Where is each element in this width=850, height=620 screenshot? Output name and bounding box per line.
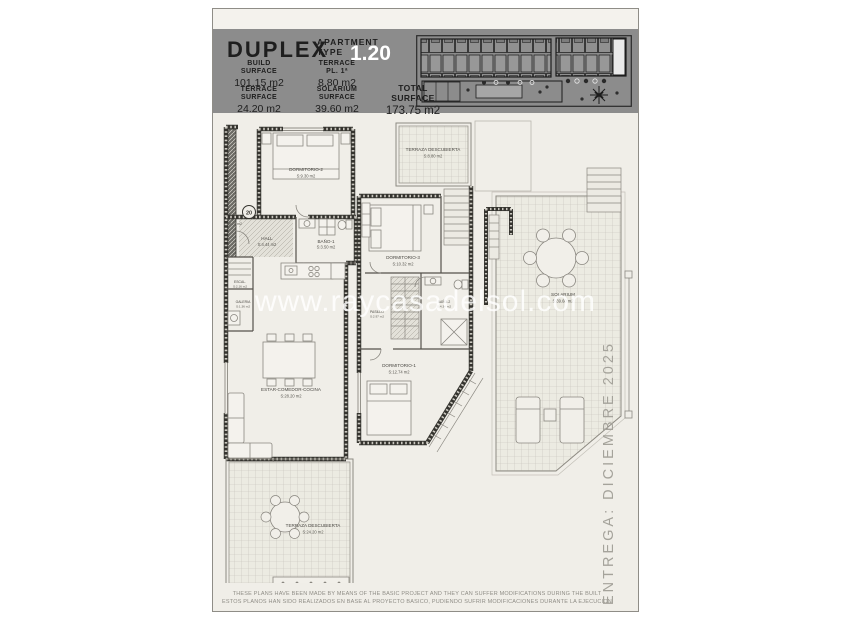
- room-area-galeria: S:1.36 m2: [236, 305, 250, 309]
- amenity-row: [566, 79, 606, 83]
- sink-icon: [430, 278, 436, 284]
- build-surface-label: BUILDSURFACE: [219, 60, 299, 76]
- room-label-solarium: SOLARIUM: [551, 292, 575, 297]
- room-area-hall: S:4.44 m2: [258, 242, 277, 247]
- room-area-escalera: S:2.16 m2: [233, 285, 247, 289]
- highlighted-unit: [613, 39, 625, 75]
- room-area-dormitorio3: S:10.32 m2: [393, 262, 415, 267]
- bed-double: [262, 133, 350, 179]
- room-label-dormitorio2: DORMITORIO-2: [289, 167, 323, 172]
- room-area-bano2: S:4.34 m2: [437, 305, 451, 309]
- kitchen-counter: [281, 263, 345, 279]
- build-surface-cell: BUILDSURFACE 101.15 m2: [219, 60, 299, 89]
- dining-table: [263, 342, 315, 378]
- room-area-terraza-p1: S:8.80 m2: [424, 154, 443, 159]
- sink-icon: [304, 221, 310, 227]
- room-area-dormitorio1: S:12.74 m2: [389, 370, 411, 375]
- toilet-tank: [462, 280, 468, 289]
- disclaimer-line-es: ESTOS PLANOS HAN SIDO REALIZADOS EN BASE…: [221, 598, 613, 606]
- residential-block-left: [421, 39, 551, 77]
- staircase-upper-right: [444, 189, 469, 245]
- dining-set: [263, 334, 315, 386]
- room-area-bano1: S:3.50 m2: [317, 245, 336, 250]
- exterior-stairs: [429, 373, 483, 452]
- sofa: [228, 393, 272, 458]
- room-area-solarium: S:39.60 m2: [553, 299, 575, 304]
- pool-area: [422, 81, 562, 103]
- disclaimer-line-en: THESE PLANS HAVE BEEN MADE BY MEANS OF T…: [221, 590, 613, 598]
- room-area-dormitorio2: S:9.30 m2: [297, 174, 316, 179]
- ground-floor-unit: 20 78.79 m2: [224, 127, 357, 584]
- room-label-bano2: BAÑO-2: [438, 299, 451, 304]
- disclaimer: THESE PLANS HAVE BEEN MADE BY MEANS OF T…: [221, 590, 613, 607]
- terrace-pl1-label: TERRACEPL. 1ª: [299, 60, 375, 76]
- type-label: TYPE: [317, 47, 343, 57]
- room-label-pasillo: PASILLO: [370, 310, 384, 314]
- room-label-hall: HALL: [261, 236, 273, 241]
- compass-rose-icon: [590, 86, 608, 104]
- solarium-surface-label: SOLARIUMSURFACE: [299, 86, 375, 102]
- solarium-surface-cell: SOLARIUMSURFACE 39.60 m2: [299, 86, 375, 115]
- room-label-escalera: ESCAL.: [234, 280, 246, 284]
- terrace-pl1-cell: TERRACEPL. 1ª 8.80 m2: [299, 60, 375, 89]
- unit-number: 20: [246, 211, 252, 217]
- stove-burner-icon: [315, 272, 319, 276]
- floor-plan-drawing: 20 78.79 m2: [213, 113, 640, 583]
- toilet-icon: [454, 280, 462, 289]
- terraza-ground: [226, 459, 353, 583]
- fridge-icon: [331, 263, 345, 279]
- stove-burner-icon: [315, 266, 319, 270]
- nightstand: [424, 205, 433, 214]
- room-label-terraza-p1: TERRAZA DESCUBIERTA: [406, 147, 462, 152]
- washer-icon: [228, 311, 240, 325]
- side-table: [544, 409, 556, 421]
- nightstand: [341, 133, 350, 144]
- residential-block-right: [556, 38, 626, 76]
- palm-tree-icon: [580, 97, 583, 100]
- bathroom1-fixtures: [299, 219, 352, 235]
- boundary-marks: [625, 271, 632, 418]
- header-band: DUPLEX APARTMENTTYPE 1.20 BUILDSURFACE 1…: [213, 29, 638, 113]
- room-area-estar: S:28.20 m2: [281, 394, 303, 399]
- terrace-surface-label: TERRACESURFACE: [219, 86, 299, 102]
- site-key-plan: [416, 35, 632, 107]
- room-label-bano1: BAÑO-1: [317, 238, 335, 244]
- room-area-terraza-pb: S:24.20 m2: [303, 530, 325, 535]
- room-area-pasillo: S:2.97 m2: [370, 315, 384, 319]
- pool: [476, 85, 522, 98]
- external-staircase: [587, 168, 621, 212]
- room-label-estar: ESTAR-COMEDOR-COCINA: [261, 387, 322, 392]
- bathroom2-fixtures: [425, 277, 468, 345]
- room-label-dormitorio1: DORMITORIO-1: [382, 363, 416, 368]
- wardrobe: [362, 203, 370, 237]
- stove-burner-icon: [309, 272, 313, 276]
- toilet-icon: [338, 221, 346, 230]
- bed-double: [369, 205, 433, 251]
- bed-double: [367, 381, 411, 435]
- plan-sheet: DUPLEX APARTMENTTYPE 1.20 BUILDSURFACE 1…: [212, 8, 639, 612]
- room-label-dormitorio3: DORMITORIO-3: [386, 255, 420, 260]
- palm-tree-icon: [615, 91, 618, 94]
- adjacent-terrace-outline: [475, 121, 531, 191]
- room-label-terraza-pb: TERRAZA DESCUBIERTA: [286, 523, 342, 528]
- stove-burner-icon: [309, 266, 313, 270]
- terrace-surface-cell: TERRACESURFACE 24.20 m2: [219, 86, 299, 115]
- first-floor-unit: [357, 123, 484, 452]
- sheet-top-strip: [213, 9, 638, 29]
- nightstand: [262, 133, 271, 144]
- escalera-steps: [227, 263, 251, 275]
- unit-total-area: 78.79 m2: [227, 222, 242, 226]
- room-label-galeria: GALERIA: [236, 300, 251, 304]
- toilet-tank: [346, 220, 352, 229]
- delivery-date-note: ENTREGA: DICIEMBRE 2025: [601, 327, 617, 605]
